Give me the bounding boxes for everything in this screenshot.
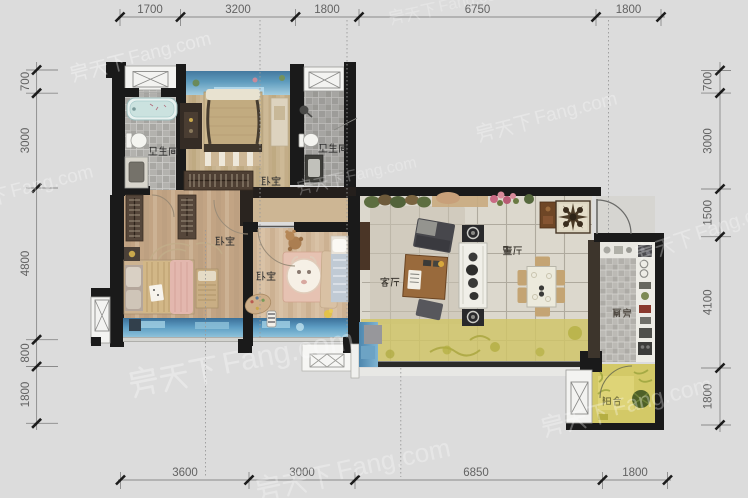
svg-text:1800: 1800 <box>622 467 648 479</box>
svg-text:4800: 4800 <box>20 251 32 277</box>
svg-text:700: 700 <box>703 72 715 91</box>
svg-text:3600: 3600 <box>172 467 198 479</box>
svg-text:4100: 4100 <box>703 290 715 316</box>
svg-text:3000: 3000 <box>20 128 32 154</box>
svg-text:1800: 1800 <box>314 4 340 16</box>
svg-text:3200: 3200 <box>225 4 251 16</box>
svg-text:1800: 1800 <box>20 382 32 408</box>
svg-text:1800: 1800 <box>616 4 642 16</box>
svg-text:700: 700 <box>20 72 32 91</box>
svg-text:1700: 1700 <box>137 4 163 16</box>
svg-text:6850: 6850 <box>463 467 489 479</box>
svg-text:3000: 3000 <box>703 128 715 154</box>
svg-text:800: 800 <box>20 343 32 362</box>
